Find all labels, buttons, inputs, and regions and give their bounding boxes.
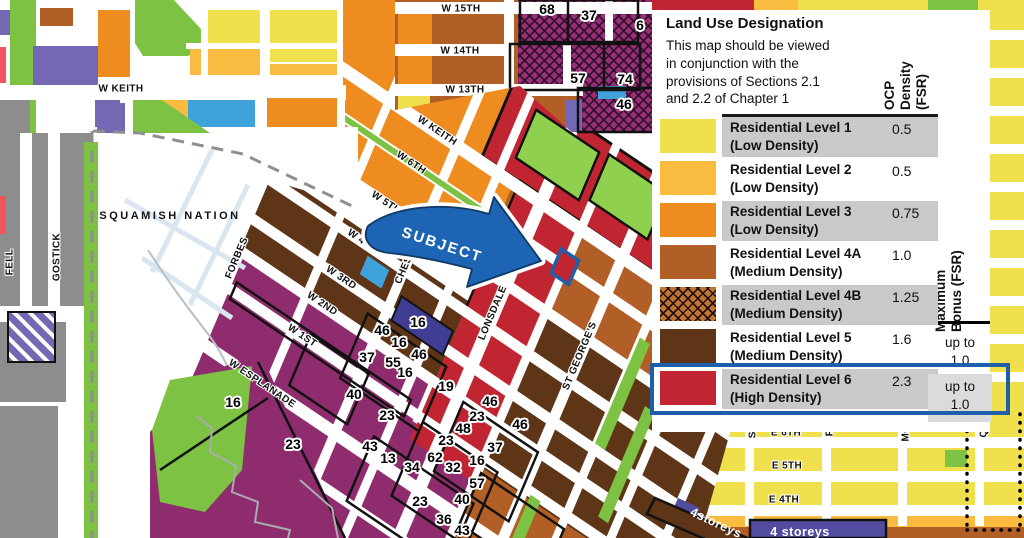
legend-row-density: 0.5: [892, 121, 911, 137]
legend-note: This map should be viewed in conjunction…: [666, 37, 830, 108]
legend-row: Residential Level 4A (Medium Density)1.0: [652, 243, 990, 283]
legend-row-density: 0.5: [892, 163, 911, 179]
legend-row: Residential Level 1 (Low Density)0.5: [652, 117, 990, 157]
legend-row: Residential Level 4B (Medium Density)1.2…: [652, 285, 990, 325]
legend-swatch: [660, 371, 716, 405]
legend-row-density: 0.75: [892, 205, 919, 221]
right-column: [990, 10, 1024, 412]
legend-swatch: [660, 119, 716, 153]
legend-swatch: [660, 203, 716, 237]
legend-row-bonus: up to 1.0: [928, 374, 992, 422]
legend-title: Land Use Designation: [666, 15, 824, 32]
legend-row-density: 1.6: [892, 331, 911, 347]
legend-swatch: [660, 329, 716, 363]
legend-density-column-header: OCP Density (FSR): [882, 34, 942, 110]
legend-row: Residential Level 3 (Low Density)0.75: [652, 201, 990, 241]
legend-row-density: 1.25: [892, 289, 919, 305]
legend-row-density: 1.0: [892, 247, 911, 263]
legend-row-bonus: up to 1.0: [928, 334, 992, 369]
legend-swatch: [660, 245, 716, 279]
legend-swatch: [660, 161, 716, 195]
legend-row: Residential Level 2 (Low Density)0.5: [652, 159, 990, 199]
striped-parcel: [8, 312, 55, 362]
legend-panel: Land Use Designation This map should be …: [652, 10, 990, 432]
legend-swatch: [660, 287, 716, 321]
zoning-map-canvas: W 15THW 14THW 13THW KEITHW KEITHW 6THW 5…: [0, 0, 1024, 538]
legend-row-density: 2.3: [892, 373, 911, 389]
